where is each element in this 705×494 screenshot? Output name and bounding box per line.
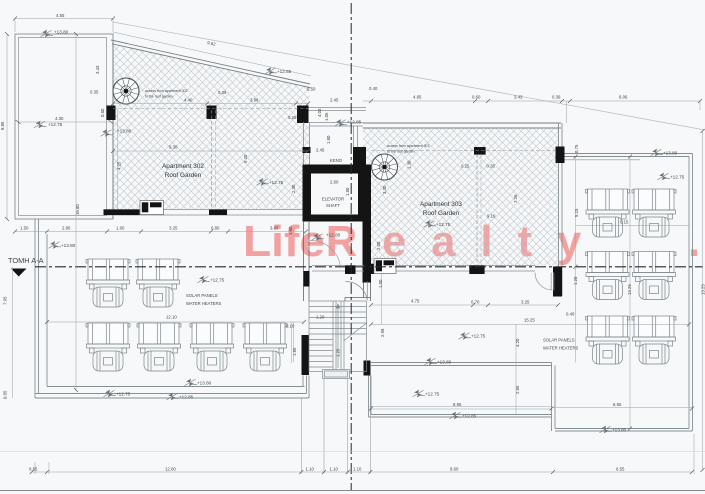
svg-text:0.40: 0.40 [369, 86, 378, 91]
svg-text:Life: Life [243, 218, 325, 266]
svg-text:0.35: 0.35 [487, 164, 496, 169]
svg-text:1.10: 1.10 [330, 467, 339, 472]
svg-text:12.10: 12.10 [166, 315, 177, 320]
svg-text:+12.75: +12.75 [436, 222, 451, 227]
svg-text:6.55: 6.55 [613, 402, 622, 407]
svg-text:WATER HEATERS: WATER HEATERS [543, 346, 578, 351]
svg-text:4.55: 4.55 [56, 13, 65, 18]
svg-text:KENO: KENO [330, 158, 343, 163]
svg-text:3.65: 3.65 [270, 226, 279, 231]
svg-text:1.10: 1.10 [353, 467, 362, 472]
svg-text:+12.75: +12.75 [116, 392, 131, 397]
svg-text:2.45: 2.45 [330, 98, 339, 103]
svg-text:3.98: 3.98 [250, 98, 259, 103]
svg-text:+12.75: +12.75 [210, 278, 225, 283]
svg-text:8.85: 8.85 [0, 121, 5, 130]
svg-text:0.25: 0.25 [461, 164, 470, 169]
svg-text:1.60: 1.60 [116, 226, 125, 231]
svg-text:4.30: 4.30 [55, 116, 64, 121]
svg-text:4.03: 4.03 [317, 108, 322, 117]
svg-text:4.20: 4.20 [515, 338, 520, 347]
svg-text:6.15: 6.15 [620, 220, 629, 225]
svg-text:SOLAR PANELS: SOLAR PANELS [186, 293, 218, 298]
svg-text:0.40: 0.40 [566, 312, 575, 317]
svg-text:+13.80: +13.80 [54, 30, 69, 35]
svg-text:5.15: 5.15 [574, 208, 579, 217]
svg-text:WATER HEATERS: WATER HEATERS [186, 301, 221, 306]
svg-text:0.39: 0.39 [218, 90, 227, 95]
svg-text:3.25: 3.25 [521, 300, 530, 305]
svg-text:+13.80: +13.80 [61, 243, 76, 248]
svg-text:3.43: 3.43 [514, 95, 523, 100]
svg-text:3.30: 3.30 [382, 185, 387, 194]
svg-text:+12.80: +12.80 [326, 233, 341, 238]
svg-text:15.25: 15.25 [524, 318, 535, 323]
svg-text:2.30: 2.30 [291, 184, 296, 193]
svg-text:0.65: 0.65 [3, 390, 8, 399]
svg-text:Apartment 302: Apartment 302 [162, 163, 204, 170]
svg-text:0.35: 0.35 [90, 90, 99, 95]
svg-text:+13.80: +13.80 [437, 360, 452, 365]
svg-text:7.95: 7.95 [3, 296, 8, 305]
svg-text:1.00: 1.00 [378, 279, 383, 288]
svg-text:.: . [688, 218, 700, 266]
svg-text:+12.75: +12.75 [269, 180, 284, 185]
svg-text:SHAFT: SHAFT [326, 203, 340, 208]
svg-text:access from apartment 303: access from apartment 303 [387, 144, 429, 148]
svg-text:Roof Garden: Roof Garden [423, 210, 460, 217]
svg-text:9.20: 9.20 [243, 154, 248, 163]
svg-text:4.85: 4.85 [413, 95, 422, 100]
svg-text:to the roof garden: to the roof garden [387, 150, 415, 154]
svg-text:6.06: 6.06 [619, 95, 628, 100]
svg-text:Apartment 303: Apartment 303 [420, 201, 462, 208]
svg-text:2.80: 2.80 [62, 226, 71, 231]
svg-text:+12.75: +12.75 [670, 175, 685, 180]
svg-text:4.40: 4.40 [184, 98, 193, 103]
svg-text:+12.75: +12.75 [48, 122, 63, 127]
svg-text:1.20: 1.20 [573, 276, 578, 285]
svg-text:Roof Garden: Roof Garden [165, 172, 202, 179]
svg-text:12.00: 12.00 [165, 467, 176, 472]
svg-text:TOMH A-A: TOMH A-A [8, 256, 44, 265]
svg-text:SOLAR PANELS: SOLAR PANELS [543, 338, 575, 343]
svg-text:+13.80: +13.80 [663, 151, 678, 156]
svg-text:1.29: 1.29 [336, 348, 341, 357]
svg-text:+12.85: +12.85 [179, 395, 194, 400]
svg-text:0.65: 0.65 [29, 467, 38, 472]
svg-text:1.30: 1.30 [407, 160, 412, 169]
svg-text:2.45: 2.45 [316, 148, 325, 153]
svg-text:1.10: 1.10 [306, 467, 315, 472]
svg-text:1.85: 1.85 [292, 347, 297, 356]
svg-text:ELEVATOR: ELEVATOR [322, 197, 344, 202]
svg-text:+13.80: +13.80 [117, 129, 132, 134]
svg-text:2.98: 2.98 [380, 328, 385, 337]
svg-text:4.25: 4.25 [117, 161, 122, 170]
svg-text:0.60: 0.60 [100, 108, 105, 117]
svg-text:+13.80: +13.80 [612, 428, 627, 433]
svg-text:0.80: 0.80 [211, 226, 220, 231]
svg-text:4.75: 4.75 [411, 299, 420, 304]
svg-text:1.20: 1.20 [316, 315, 325, 320]
svg-text:2.60: 2.60 [330, 180, 339, 185]
svg-text:0.39: 0.39 [552, 95, 561, 100]
svg-text:1.05: 1.05 [324, 112, 329, 121]
svg-text:+12.85: +12.85 [347, 120, 362, 125]
svg-text:2.65: 2.65 [515, 385, 520, 394]
svg-text:1.80: 1.80 [345, 187, 350, 196]
svg-text:6.55: 6.55 [616, 467, 625, 472]
svg-text:to the roof garden: to the roof garden [145, 95, 173, 99]
svg-text:0.10: 0.10 [286, 324, 295, 329]
svg-text:3.25: 3.25 [169, 226, 178, 231]
svg-text:16.80: 16.80 [75, 204, 80, 215]
svg-text:2.08: 2.08 [376, 241, 381, 250]
svg-text:+12.75: +12.75 [471, 334, 486, 339]
svg-text:1.80: 1.80 [326, 135, 331, 144]
svg-text:3.43: 3.43 [95, 65, 100, 74]
svg-text:9.30: 9.30 [169, 145, 178, 150]
svg-text:0.70: 0.70 [471, 300, 480, 305]
svg-text:1.50: 1.50 [20, 226, 29, 231]
svg-text:8.60: 8.60 [450, 467, 459, 472]
svg-text:1.60: 1.60 [288, 226, 293, 235]
svg-text:0.25: 0.25 [288, 115, 297, 120]
svg-text:+12.85: +12.85 [277, 69, 292, 74]
svg-text:0.60: 0.60 [472, 95, 481, 100]
svg-text:+12.75: +12.75 [425, 392, 440, 397]
svg-text:+12.85: +12.85 [462, 414, 477, 419]
svg-text:9.10: 9.10 [487, 214, 496, 219]
svg-text:+13.80: +13.80 [197, 381, 212, 386]
svg-text:access from apartment 302: access from apartment 302 [145, 89, 187, 93]
svg-text:13.25: 13.25 [701, 284, 705, 295]
svg-text:7.26: 7.26 [513, 194, 518, 203]
svg-text:0.50: 0.50 [307, 87, 316, 92]
svg-text:0.75: 0.75 [574, 144, 579, 153]
svg-text:13.25: 13.25 [627, 284, 632, 295]
svg-text:8.95: 8.95 [453, 402, 462, 407]
